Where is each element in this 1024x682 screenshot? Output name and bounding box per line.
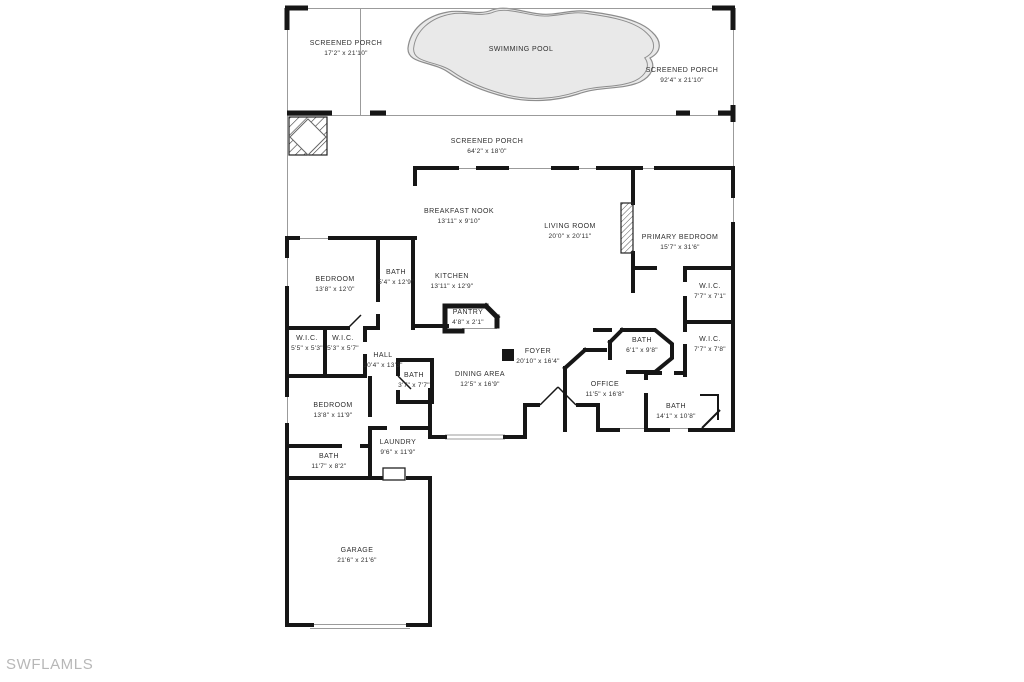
room-label-wic-primary-2: W.I.C.7'7" x 7'8": [694, 335, 726, 355]
room-name: LAUNDRY: [380, 438, 416, 448]
room-dims: 20'10" x 16'4": [516, 357, 559, 366]
room-name: FOYER: [516, 347, 559, 357]
room-dims: 5'5" x 5'3": [291, 344, 323, 353]
room-name: BATH: [398, 371, 430, 381]
foyer-column: [502, 349, 514, 361]
room-name: SCREENED PORCH: [310, 39, 382, 49]
room-label-foyer: FOYER20'10" x 16'4": [516, 347, 559, 367]
floor-plan-drawing: [0, 0, 1024, 682]
hatched-corner-feature: [289, 117, 327, 155]
room-name: SWIMMING POOL: [489, 45, 554, 55]
room-name: BREAKFAST NOOK: [424, 207, 494, 217]
room-dims: 64'2" x 18'0": [451, 147, 523, 156]
room-name: SCREENED PORCH: [646, 66, 718, 76]
room-label-living-room: LIVING ROOM20'0" x 20'11": [544, 222, 596, 242]
room-name: W.I.C.: [694, 282, 726, 292]
room-dims: 6'1" x 9'8": [626, 346, 658, 355]
room-dims: 92'4" x 21'10": [646, 76, 718, 85]
room-dims: 11'7" x 8'2": [311, 462, 346, 471]
room-dims: 11'5" x 16'8": [585, 390, 624, 399]
room-label-bedroom-2: BEDROOM13'8" x 11'9": [313, 401, 352, 421]
room-label-pantry: PANTRY4'8" x 2'1": [452, 308, 484, 328]
room-label-hall: HALL10'4" x 13'3": [363, 351, 403, 371]
room-name: LIVING ROOM: [544, 222, 596, 232]
room-name: W.I.C.: [694, 335, 726, 345]
room-dims: 13'11" x 9'10": [424, 217, 494, 226]
room-label-wic-primary-1: W.I.C.7'7" x 7'1": [694, 282, 726, 302]
room-label-primary-bedroom: PRIMARY BEDROOM15'7" x 31'6": [642, 233, 719, 253]
room-dims: 12'5" x 16'9": [455, 380, 505, 389]
room-name: BATH: [626, 336, 658, 346]
room-dims: 9'6" x 11'9": [380, 448, 416, 457]
room-name: HALL: [363, 351, 403, 361]
bath-fixture-lines: [700, 395, 720, 428]
room-name: GARAGE: [337, 546, 377, 556]
room-label-laundry: LAUNDRY9'6" x 11'9": [380, 438, 416, 458]
room-label-kitchen: KITCHEN13'11" x 12'9": [431, 272, 474, 292]
room-dims: 10'4" x 13'3": [363, 361, 403, 370]
media-niche-hatch: [621, 203, 633, 253]
room-label-breakfast-nook: BREAKFAST NOOK13'11" x 9'10": [424, 207, 494, 227]
mls-watermark: SWFLAMLS: [6, 656, 93, 673]
room-dims: 3'7" x 7'7": [398, 381, 430, 390]
room-name: W.I.C.: [327, 334, 359, 344]
garage-stoop: [383, 468, 405, 480]
room-name: SCREENED PORCH: [451, 137, 523, 147]
room-name: KITCHEN: [431, 272, 474, 282]
room-name: BEDROOM: [315, 275, 355, 285]
room-label-bath-4: BATH14'1" x 10'8": [656, 402, 696, 422]
room-label-screened-porch-lanai: SCREENED PORCH64'2" x 18'0": [451, 137, 523, 157]
room-label-bath-2: BATH3'7" x 7'7": [398, 371, 430, 391]
room-dims: 13'8" x 11'9": [313, 411, 352, 420]
room-dims: 13'8" x 12'0": [315, 285, 355, 294]
room-label-bedroom-1: BEDROOM13'8" x 12'0": [315, 275, 355, 295]
room-label-swimming-pool: SWIMMING POOL: [489, 45, 554, 55]
room-name: BATH: [311, 452, 346, 462]
room-label-wic-left-2: W.I.C.5'3" x 5'7": [327, 334, 359, 354]
room-dims: 17'2" x 21'10": [310, 49, 382, 58]
room-name: BATH: [378, 268, 414, 278]
room-label-screened-porch-left: SCREENED PORCH17'2" x 21'10": [310, 39, 382, 59]
floor-plan-canvas: SCREENED PORCH17'2" x 21'10" SWIMMING PO…: [0, 0, 1024, 682]
room-dims: 21'6" x 21'6": [337, 556, 377, 565]
room-name: DINING AREA: [455, 370, 505, 380]
room-label-office: OFFICE11'5" x 16'8": [585, 380, 624, 400]
room-dims: 7'7" x 7'8": [694, 345, 726, 354]
room-dims: 5'4" x 12'9": [378, 278, 414, 287]
room-dims: 13'11" x 12'9": [431, 282, 474, 291]
room-dims: 14'1" x 10'8": [656, 412, 696, 421]
room-label-bath-3: BATH6'1" x 9'8": [626, 336, 658, 356]
room-label-screened-porch-right: SCREENED PORCH92'4" x 21'10": [646, 66, 718, 86]
room-name: BATH: [656, 402, 696, 412]
room-label-dining-area: DINING AREA12'5" x 16'9": [455, 370, 505, 390]
room-dims: 20'0" x 20'11": [544, 232, 596, 241]
room-name: BEDROOM: [313, 401, 352, 411]
screen-lines: [288, 9, 734, 629]
room-label-bath-5: BATH11'7" x 8'2": [311, 452, 346, 472]
room-label-wic-left-1: W.I.C.5'5" x 5'3": [291, 334, 323, 354]
room-label-bath-1: BATH5'4" x 12'9": [378, 268, 414, 288]
room-label-garage: GARAGE21'6" x 21'6": [337, 546, 377, 566]
room-name: OFFICE: [585, 380, 624, 390]
room-dims: 15'7" x 31'6": [642, 243, 719, 252]
room-dims: 4'8" x 2'1": [452, 318, 484, 327]
room-name: PANTRY: [452, 308, 484, 318]
room-name: PRIMARY BEDROOM: [642, 233, 719, 243]
room-name: W.I.C.: [291, 334, 323, 344]
room-dims: 5'3" x 5'7": [327, 344, 359, 353]
room-dims: 7'7" x 7'1": [694, 292, 726, 301]
